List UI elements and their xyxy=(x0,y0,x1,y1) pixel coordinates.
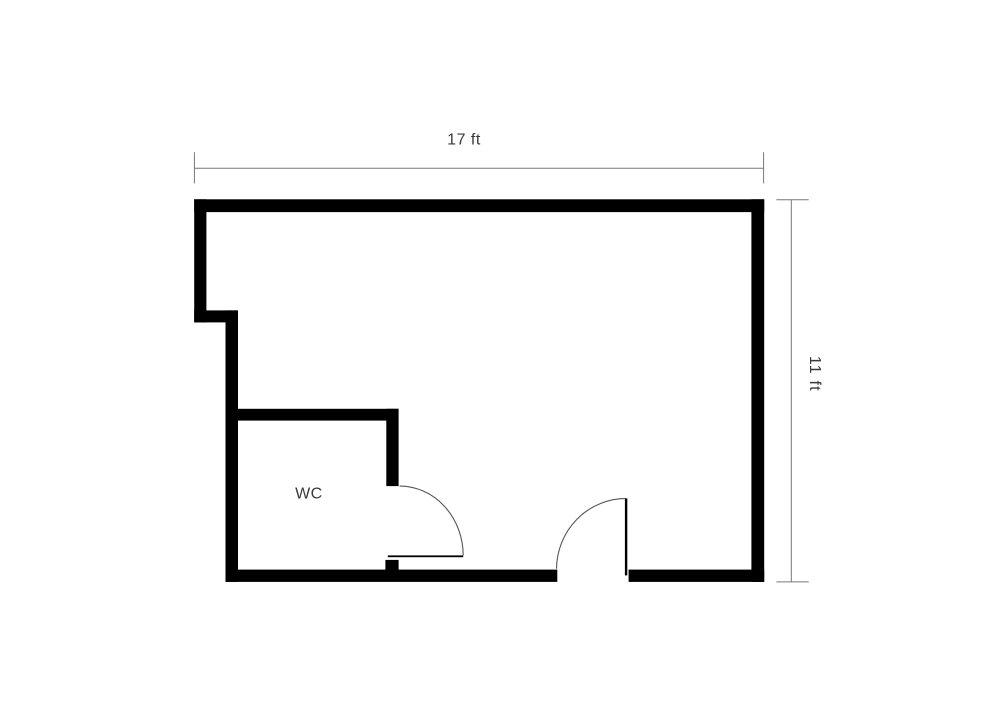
svg-text:17 ft: 17 ft xyxy=(447,132,481,149)
svg-text:11 ft: 11 ft xyxy=(806,356,823,392)
svg-text:WC: WC xyxy=(295,485,323,502)
